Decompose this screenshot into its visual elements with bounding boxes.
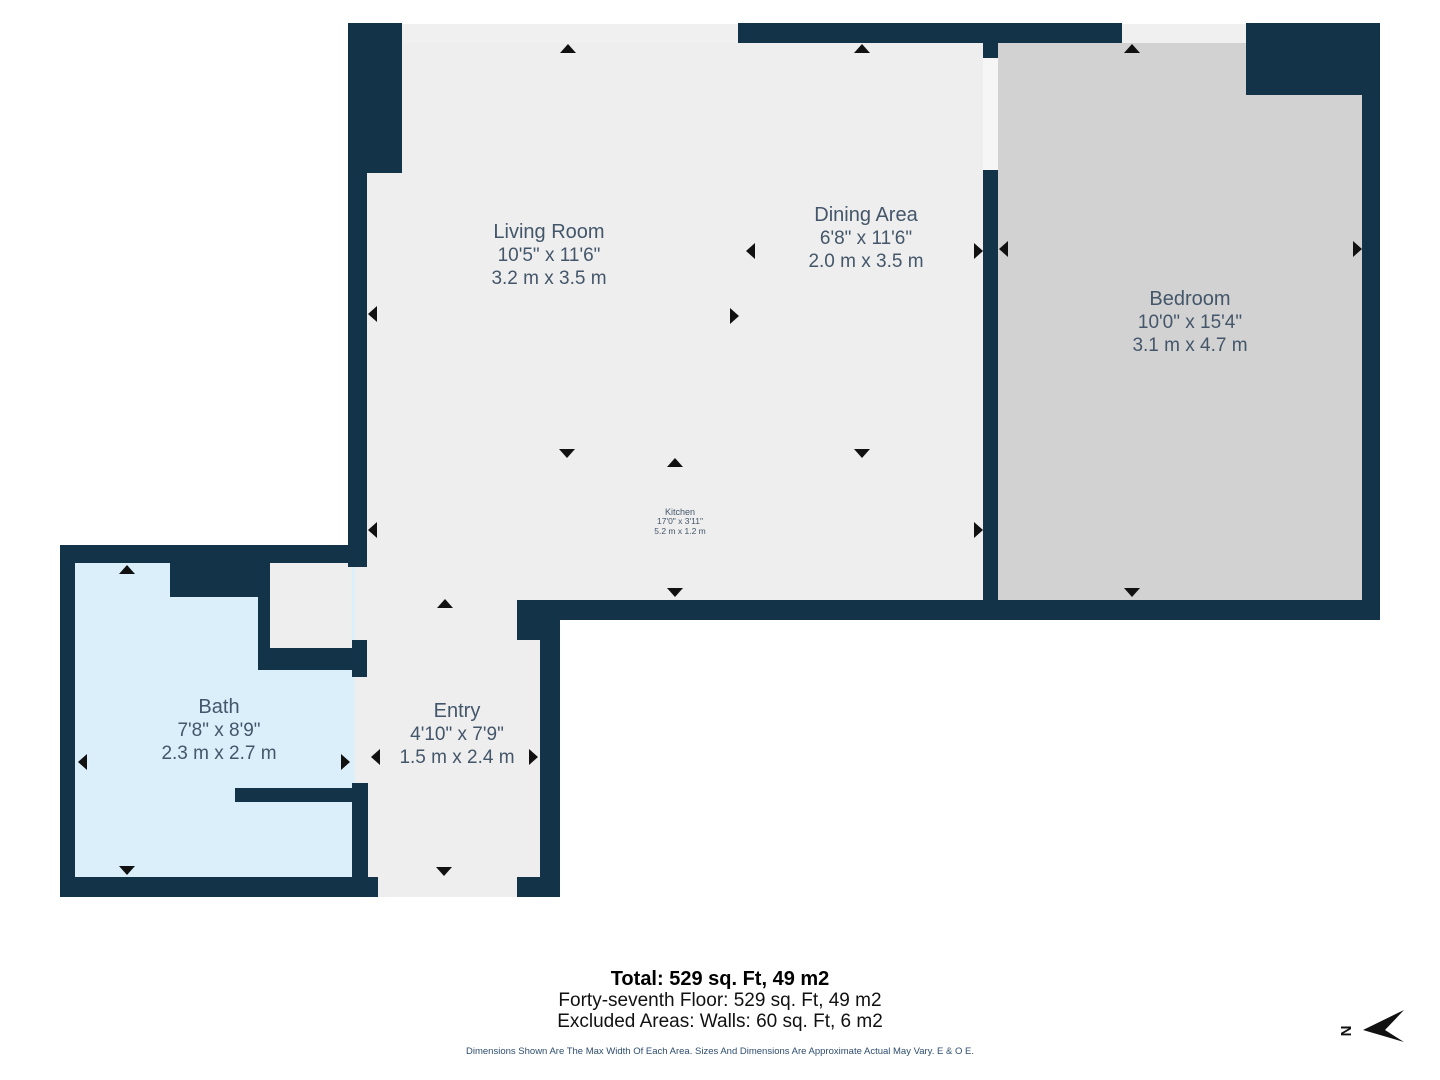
- measure-arrow-up-icon: [854, 44, 870, 53]
- bedroom-label: Bedroom 10'0" x 15'4" 3.1 m x 4.7 m: [1070, 287, 1310, 357]
- floor-plan: Living Room 10'5" x 11'6" 3.2 m x 3.5 m …: [0, 0, 1440, 1080]
- room-name: Bedroom: [1070, 287, 1310, 311]
- room-dims-m: 3.2 m x 3.5 m: [429, 267, 669, 290]
- measure-arrow-up-icon: [119, 565, 135, 574]
- wall-segment: [60, 545, 75, 897]
- measure-arrow-down-icon: [436, 867, 452, 876]
- wall-segment: [235, 788, 357, 802]
- measure-arrow-down-icon: [667, 588, 683, 597]
- room-name: Living Room: [429, 220, 669, 244]
- wall-segment: [258, 648, 367, 670]
- measure-arrow-up-icon: [667, 458, 683, 467]
- living-room-label: Living Room 10'5" x 11'6" 3.2 m x 3.5 m: [429, 220, 669, 290]
- wall-segment: [352, 640, 367, 677]
- window-strip-living: [402, 24, 738, 43]
- measure-arrow-right-icon: [974, 522, 983, 538]
- room-dims-m: 2.3 m x 2.7 m: [99, 742, 339, 765]
- north-label: N: [1338, 1022, 1356, 1040]
- wall-segment: [517, 600, 1380, 620]
- wall-segment: [170, 563, 260, 597]
- measure-arrow-down-icon: [119, 866, 135, 875]
- room-dims-ft: 10'0" x 15'4": [1070, 311, 1310, 334]
- measure-arrow-left-icon: [368, 522, 377, 538]
- wall-segment: [983, 43, 998, 58]
- disclaimer-text: Dimensions Shown Are The Max Width Of Ea…: [0, 1046, 1440, 1057]
- measure-arrow-right-icon: [730, 308, 739, 324]
- measure-arrow-up-icon: [1124, 44, 1140, 53]
- room-dims-m: 3.1 m x 4.7 m: [1070, 334, 1310, 357]
- measure-arrow-left-icon: [78, 754, 87, 770]
- measure-arrow-down-icon: [559, 449, 575, 458]
- room-dims-ft: 10'5" x 11'6": [429, 244, 669, 267]
- room-floor-closet: [270, 563, 352, 648]
- room-dims-m: 1.5 m x 2.4 m: [337, 746, 577, 769]
- floor-area-text: Forty-seventh Floor: 529 sq. Ft, 49 m2: [0, 990, 1440, 1011]
- entry-door-opening: [378, 879, 517, 897]
- measure-arrow-left-icon: [368, 306, 377, 322]
- bath-label: Bath 7'8" x 8'9" 2.3 m x 2.7 m: [99, 695, 339, 765]
- wall-segment: [258, 563, 270, 648]
- wall-segment: [1362, 95, 1380, 620]
- wall-segment: [738, 23, 1122, 43]
- room-dims-m: 5.2 m x 1.2 m: [610, 527, 750, 537]
- room-dims-ft: 7'8" x 8'9": [99, 719, 339, 742]
- excluded-area-text: Excluded Areas: Walls: 60 sq. Ft, 6 m2: [0, 1011, 1440, 1032]
- kitchen-label: Kitchen 17'0" x 3'11" 5.2 m x 1.2 m: [610, 507, 750, 536]
- measure-arrow-down-icon: [854, 449, 870, 458]
- room-name: Dining Area: [746, 203, 986, 227]
- measure-arrow-down-icon: [1124, 588, 1140, 597]
- wall-segment: [60, 877, 378, 897]
- area-summary: Total: 529 sq. Ft, 49 m2 Forty-seventh F…: [0, 968, 1440, 1032]
- measure-arrow-right-icon: [1353, 241, 1362, 257]
- room-dims-m: 2.0 m x 3.5 m: [746, 250, 986, 273]
- window-strip-bedroom: [1122, 24, 1246, 43]
- wall-segment: [1246, 23, 1380, 95]
- dining-area-label: Dining Area 6'8" x 11'6" 2.0 m x 3.5 m: [746, 203, 986, 273]
- room-name: Bath: [99, 695, 339, 719]
- entry-label: Entry 4'10" x 7'9" 1.5 m x 2.4 m: [337, 699, 577, 769]
- room-name: Entry: [337, 699, 577, 723]
- measure-arrow-up-icon: [560, 44, 576, 53]
- north-arrow-icon: [1362, 1008, 1408, 1044]
- room-dims-ft: 6'8" x 11'6": [746, 227, 986, 250]
- wall-segment: [348, 43, 367, 567]
- wall-segment: [60, 545, 367, 563]
- total-area-text: Total: 529 sq. Ft, 49 m2: [0, 968, 1440, 990]
- wall-segment: [517, 877, 560, 897]
- partition-opening: [983, 58, 998, 170]
- measure-arrow-up-icon: [437, 599, 453, 608]
- measure-arrow-left-icon: [999, 241, 1008, 257]
- room-dims-ft: 4'10" x 7'9": [337, 723, 577, 746]
